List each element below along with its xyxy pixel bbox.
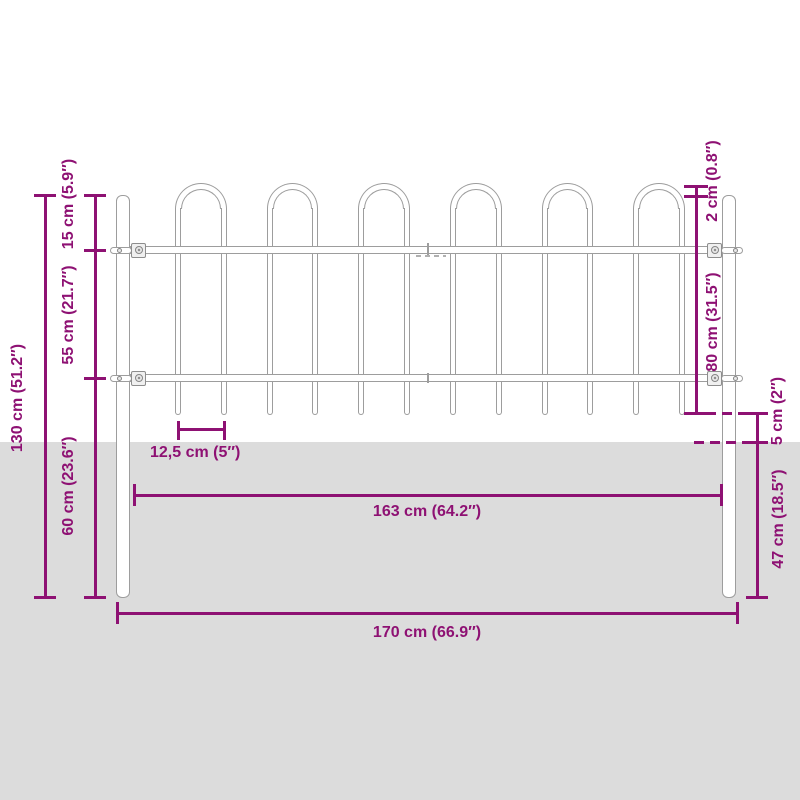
dim-inner-width-tick-right bbox=[720, 484, 723, 506]
fence-bar bbox=[404, 208, 410, 415]
right-post bbox=[722, 195, 736, 598]
bracket-screw bbox=[711, 246, 719, 254]
bottom-rail bbox=[130, 374, 722, 382]
dim-bar-end-tick bbox=[684, 412, 708, 415]
dim-total-width-line bbox=[117, 612, 737, 615]
dim-inner-width-label: 163 cm (64.2″) bbox=[373, 503, 481, 521]
dim-inner-width-line bbox=[134, 494, 722, 497]
dim-right-tick-bar-end bbox=[746, 412, 768, 415]
dim-rail-to-rail-label: 55 cm (21.7″) bbox=[60, 265, 78, 364]
dim-bar-spacing-line bbox=[178, 428, 224, 431]
dim-left-tick-rail2 bbox=[84, 377, 106, 380]
dim-total-height-label: 130 cm (51.2″) bbox=[9, 344, 27, 452]
dim-total-height-tick-top bbox=[34, 194, 56, 197]
pin-screw bbox=[117, 248, 122, 253]
dim-hoop-above-post-label: 2 cm (0.8″) bbox=[704, 140, 722, 221]
fence-bar bbox=[175, 208, 181, 415]
bracket-screw bbox=[135, 374, 143, 382]
fence-bar bbox=[496, 208, 502, 415]
dim-dash-bar-end-level bbox=[706, 412, 746, 415]
left-post bbox=[116, 195, 130, 598]
top-rail bbox=[130, 246, 722, 254]
dim-inner-width-tick-left bbox=[133, 484, 136, 506]
fence-bar bbox=[221, 208, 227, 415]
pin-screw bbox=[733, 376, 738, 381]
dim-left-tick-bottom bbox=[84, 596, 106, 599]
bracket-screw bbox=[135, 246, 143, 254]
dim-total-height-line bbox=[44, 195, 47, 597]
dim-right-tick-post-bottom bbox=[746, 596, 768, 599]
fence-bar bbox=[633, 208, 639, 415]
dim-panel-height-label: 80 cm (31.5″) bbox=[704, 272, 722, 371]
dim-right-inner-line bbox=[695, 186, 698, 414]
dim-total-width-tick-right bbox=[736, 602, 739, 624]
fence-bar bbox=[587, 208, 593, 415]
fence-bar bbox=[267, 208, 273, 415]
dim-bar-spacing-tick-left bbox=[177, 421, 180, 440]
dim-total-width-label: 170 cm (66.9″) bbox=[373, 624, 481, 642]
fence-bar bbox=[358, 208, 364, 415]
pin-screw bbox=[117, 376, 122, 381]
dim-dash-ground-level bbox=[694, 441, 746, 444]
dim-bar-to-ground-label: 5 cm (2″) bbox=[769, 377, 787, 445]
fence-bar bbox=[450, 208, 456, 415]
dim-hoop-section-label: 15 cm (5.9″) bbox=[60, 159, 78, 249]
dimension-diagram: 130 cm (51.2″) 15 cm (5.9″) 55 cm (21.7″… bbox=[0, 0, 800, 800]
dim-left-tick-rail1 bbox=[84, 249, 106, 252]
dim-bar-spacing-label: 12,5 cm (5″) bbox=[150, 444, 240, 462]
dim-left-column-line bbox=[94, 195, 97, 597]
dim-lower-section-label: 60 cm (23.6″) bbox=[60, 436, 78, 535]
fence-bar bbox=[542, 208, 548, 415]
bracket-screw bbox=[711, 374, 719, 382]
dim-right-tick-ground bbox=[746, 441, 768, 444]
panel-joint-seam-bottom bbox=[427, 373, 429, 383]
fence-bar bbox=[312, 208, 318, 415]
dim-bar-spacing-tick-right bbox=[223, 421, 226, 440]
fence-bar bbox=[679, 208, 685, 415]
dim-total-height-tick-bottom bbox=[34, 596, 56, 599]
panel-joint-marks bbox=[416, 255, 446, 257]
pin-screw bbox=[733, 248, 738, 253]
dim-underground-label: 47 cm (18.5″) bbox=[770, 469, 788, 568]
panel-joint-seam-top bbox=[427, 243, 429, 255]
dim-total-width-tick-left bbox=[116, 602, 119, 624]
dim-left-tick-top bbox=[84, 194, 106, 197]
